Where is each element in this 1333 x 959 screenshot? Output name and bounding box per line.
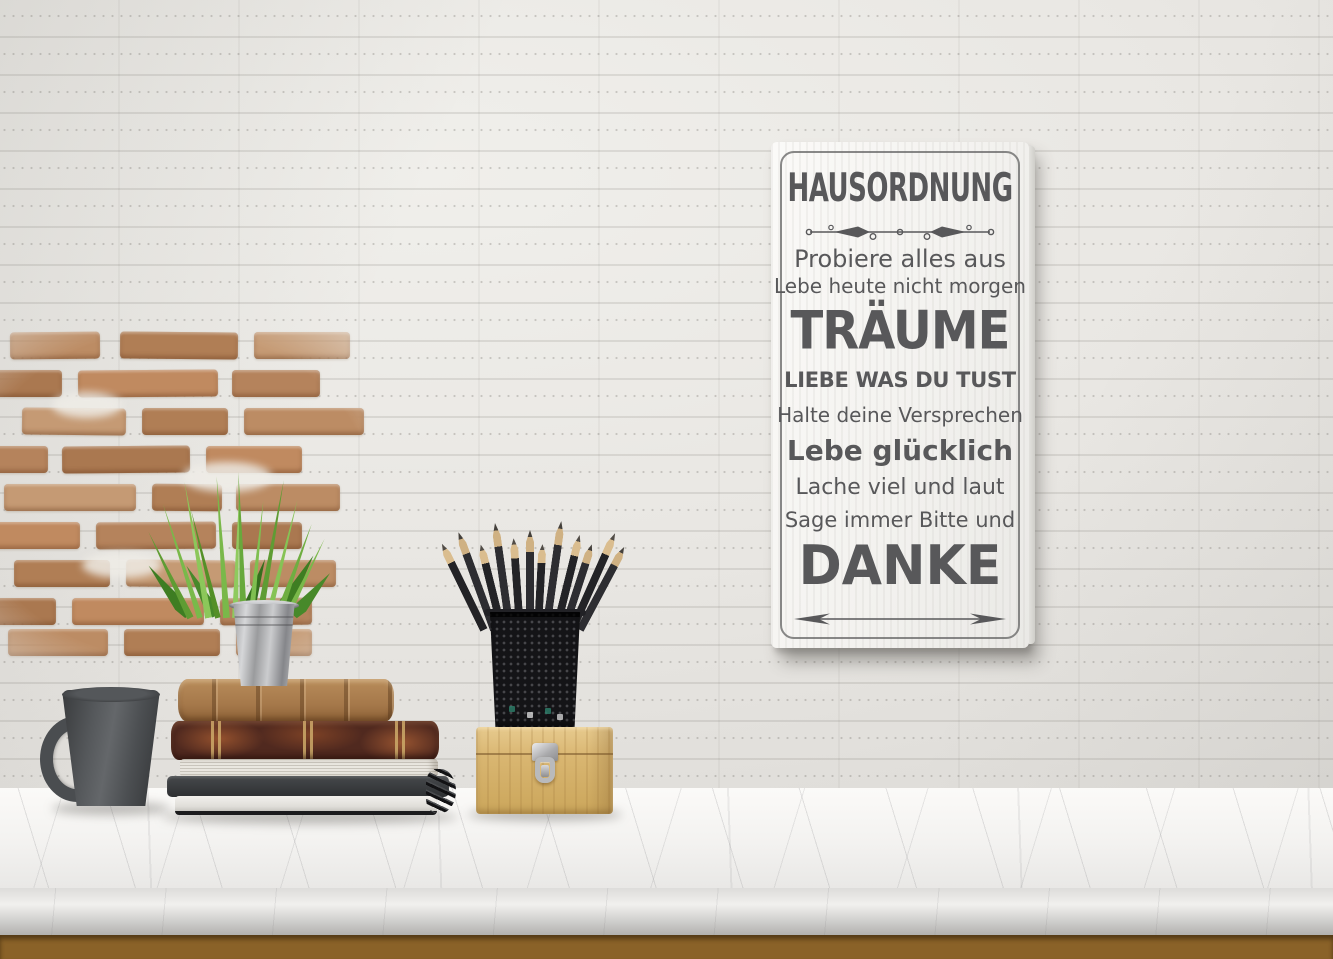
mesh-pencil-cup: [487, 612, 583, 732]
brick: [142, 408, 228, 435]
brick: [0, 446, 48, 473]
sign-line-7: Lache viel und laut: [795, 475, 1004, 501]
paint-smear: [52, 392, 122, 418]
grass-plant: [185, 462, 311, 612]
book-page-edges: [180, 759, 438, 777]
sign-line-3: TRÄUME: [791, 303, 1010, 358]
sign-content: HAUSORDNUNG Probiere alles aus Lebe heut…: [771, 142, 1029, 648]
pencil-end: [509, 706, 515, 712]
zinc-bucket: [230, 604, 298, 686]
book-maroon-worn: [171, 721, 439, 760]
wall-sign: HAUSORDNUNG Probiere alles aus Lebe heut…: [771, 142, 1029, 648]
brick: [0, 370, 62, 397]
ornament-divider-icon: [800, 222, 1000, 242]
pencil-end: [545, 708, 551, 714]
sign-side-edge: [1029, 146, 1035, 644]
sign-line-8: Sage immer Bitte und: [785, 508, 1015, 533]
grass-blade: [181, 481, 212, 618]
sign-line-2: Lebe heute nicht morgen: [774, 274, 1026, 298]
brick: [0, 522, 80, 549]
pencil-end: [527, 712, 533, 718]
brick: [4, 484, 136, 511]
sign-line-1: Probiere alles aus: [794, 246, 1006, 274]
sign-line-4: LIEBE WAS DU TUST: [784, 368, 1016, 393]
latch-pin: [541, 765, 549, 777]
double-arrow-icon: [790, 610, 1010, 628]
sign-line-5: Halte deine Versprechen: [777, 403, 1023, 427]
brick: [254, 332, 350, 359]
book-dark-gray: [167, 776, 449, 797]
bucket-ridge: [234, 624, 294, 626]
wood-floor-strip: [0, 935, 1333, 959]
brick: [244, 408, 364, 435]
counter-front-edge: [0, 888, 1333, 935]
pine-wood-box: [476, 727, 613, 814]
mug-rim: [62, 687, 160, 702]
bucket-ridge: [234, 616, 294, 618]
brick: [62, 445, 190, 473]
scene: HAUSORDNUNG Probiere alles aus Lebe heut…: [0, 0, 1333, 959]
brick: [124, 629, 220, 656]
box-latch: [529, 743, 561, 791]
spiral-binding: [426, 769, 456, 813]
mug-body: [62, 690, 160, 806]
grass-blade: [213, 476, 230, 618]
mug: [40, 690, 176, 810]
brick: [0, 598, 56, 625]
brick: [120, 331, 238, 359]
paint-smear: [82, 552, 162, 578]
sign-title: HAUSORDNUNG: [787, 170, 1012, 209]
book-white-bottom: [175, 796, 437, 815]
brick: [8, 629, 108, 656]
pencil-end: [557, 714, 563, 720]
brick: [10, 332, 100, 360]
sign-line-9: DANKE: [799, 538, 1002, 595]
sign-line-6: Lebe glücklich: [787, 435, 1013, 467]
brick: [232, 370, 320, 397]
